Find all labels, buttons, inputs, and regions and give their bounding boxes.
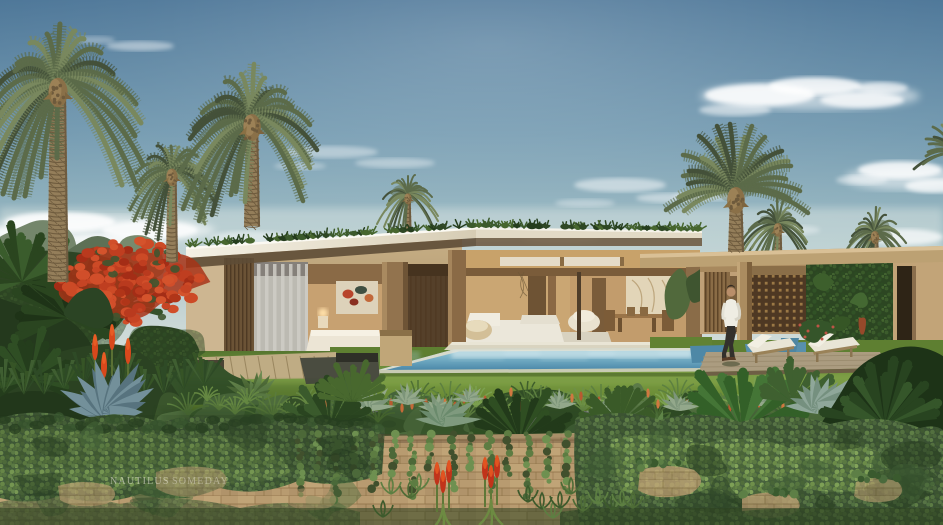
- svg-text:NAUTILUS: NAUTILUS: [110, 476, 170, 487]
- svg-text:SOMEDAY: SOMEDAY: [172, 476, 229, 487]
